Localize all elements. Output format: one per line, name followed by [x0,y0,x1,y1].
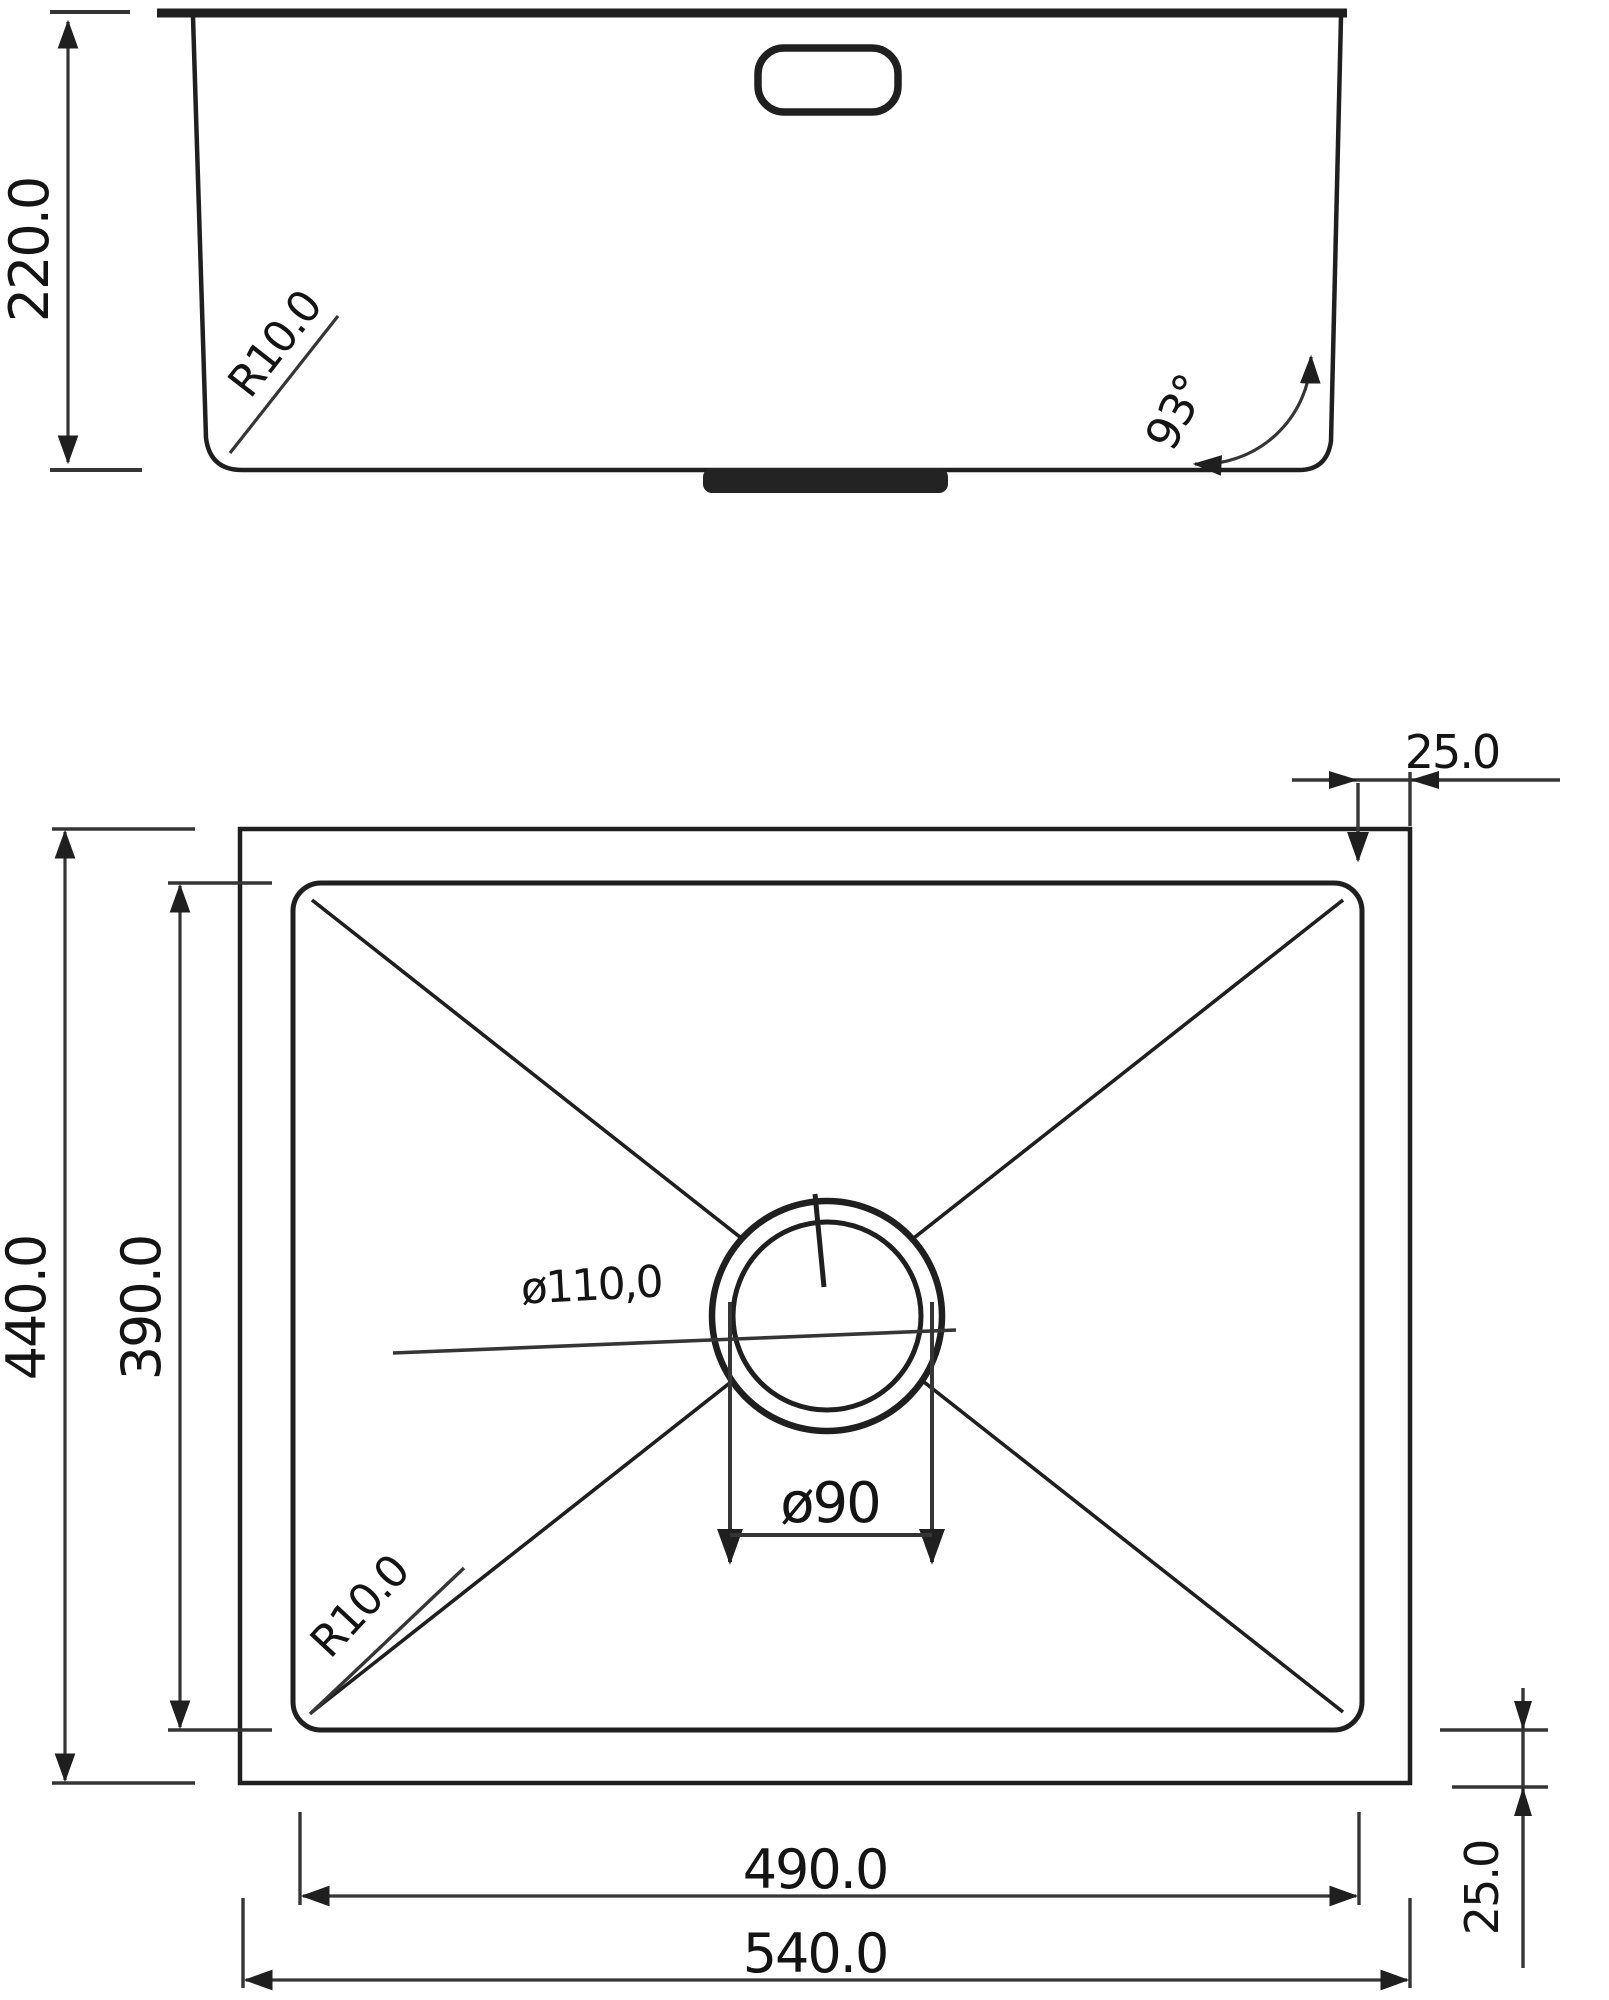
sink-drawing: 220.0 R10.0 93° ø110,0 [0,0,1609,2000]
plan-view: ø110,0 ø90 R10.0 440.0 390.0 [0,725,1560,1988]
arrowhead [1514,1701,1532,1730]
dimension-inner-width: 490.0 [300,1812,1359,1905]
dim-label-rim-side: 25.0 [1455,1841,1509,1935]
dimension-rim-side: 25.0 [1440,1688,1548,1968]
dimension-inner-height: 390.0 [110,883,272,1730]
angle-label: 93° [1134,366,1217,458]
dim-label-depth: 220.0 [0,178,61,323]
dim-label-rim-top: 25.0 [1405,725,1499,779]
dim-label-outer-width: 540.0 [743,1922,888,1985]
dim-label-inner-height: 390.0 [110,1236,173,1381]
drain-boss [703,468,948,493]
dimension-rim-top: 25.0 [1292,725,1560,860]
overflow-hole [758,48,898,112]
drain-inner-label: ø90 [780,1471,880,1536]
dimension-depth: 220.0 [0,12,142,470]
dim-label-inner-width: 490.0 [743,1838,888,1901]
radius-callout-plan: R10.0 [301,1546,464,1714]
side-view: 220.0 R10.0 93° [0,12,1347,493]
arrowhead [1514,1787,1532,1816]
dimension-outer-width: 540.0 [243,1898,1410,1988]
angle-arc [1195,357,1311,464]
drain-outer-label: ø110,0 [520,1256,663,1314]
radius-callout-side: R10.0 [218,282,338,453]
technical-drawing-canvas: 220.0 R10.0 93° ø110,0 [0,0,1609,2000]
radius-label-plan: R10.0 [301,1546,419,1667]
angle-callout: 93° [1134,357,1311,464]
dim-label-outer-height: 440.0 [0,1236,58,1381]
drain-circle-outer [712,1201,942,1431]
arrowhead [1329,771,1358,789]
